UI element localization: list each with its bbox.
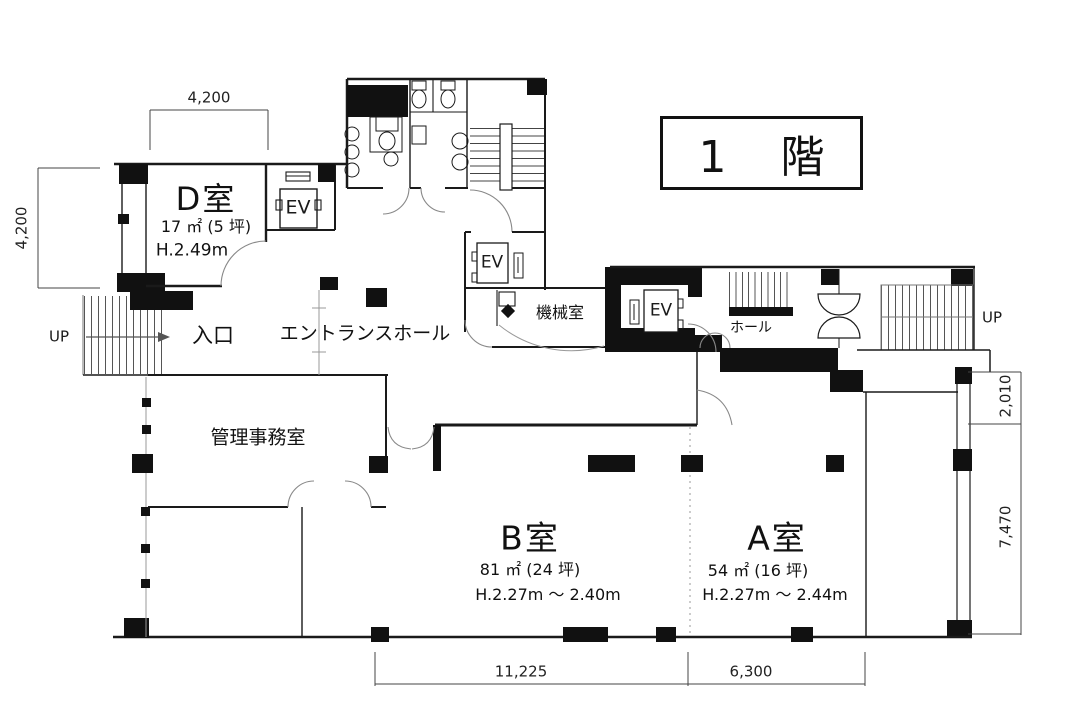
floor-plan: 1 階 D室 17 ㎡ (5 坪) H.2.49m B室 81 ㎡ (24 坪)… bbox=[0, 0, 1079, 718]
up-label-left: UP bbox=[49, 330, 69, 345]
dim-right-lower: 7,470 bbox=[999, 506, 1014, 549]
floor-title-box: 1 階 bbox=[660, 116, 863, 190]
stairs-central bbox=[470, 128, 545, 187]
dim-bottom-b: 11,225 bbox=[495, 665, 548, 680]
room-d-label: D室 bbox=[176, 183, 237, 215]
room-b-area: 81 ㎡ (24 坪) bbox=[480, 562, 580, 578]
room-a-area: 54 ㎡ (16 坪) bbox=[708, 563, 808, 579]
dim-right-upper: 2,010 bbox=[999, 375, 1014, 418]
elevator-3-label: EV bbox=[650, 303, 672, 320]
entrance-hall-label: エントランスホール bbox=[280, 325, 451, 344]
dim-left-height: 4,200 bbox=[15, 207, 30, 250]
dim-top-width: 4,200 bbox=[188, 91, 231, 106]
elevator-1-label: EV bbox=[285, 199, 310, 218]
elevator-2-label: EV bbox=[481, 255, 503, 272]
office-label: 管理事務室 bbox=[210, 429, 305, 448]
stairs-left-up bbox=[84, 296, 168, 374]
entrance-label: 入口 bbox=[192, 326, 234, 347]
hall-label: ホール bbox=[730, 321, 772, 335]
up-label-right: UP bbox=[982, 311, 1002, 326]
machine-room-label: 機械室 bbox=[536, 305, 584, 321]
room-d-height: H.2.49m bbox=[156, 243, 228, 260]
floor-title: 1 階 bbox=[679, 121, 845, 185]
room-b-height: H.2.27m ～ 2.40m bbox=[475, 587, 620, 603]
room-a-label: A室 bbox=[747, 522, 807, 555]
dim-bottom-a: 6,300 bbox=[730, 665, 773, 680]
room-d-area: 17 ㎡ (5 坪) bbox=[161, 219, 251, 235]
room-a-height: H.2.27m ～ 2.44m bbox=[702, 587, 847, 603]
room-b-label: B室 bbox=[500, 522, 560, 555]
stairs-hall bbox=[729, 272, 793, 308]
stairs-right-up bbox=[881, 285, 973, 350]
